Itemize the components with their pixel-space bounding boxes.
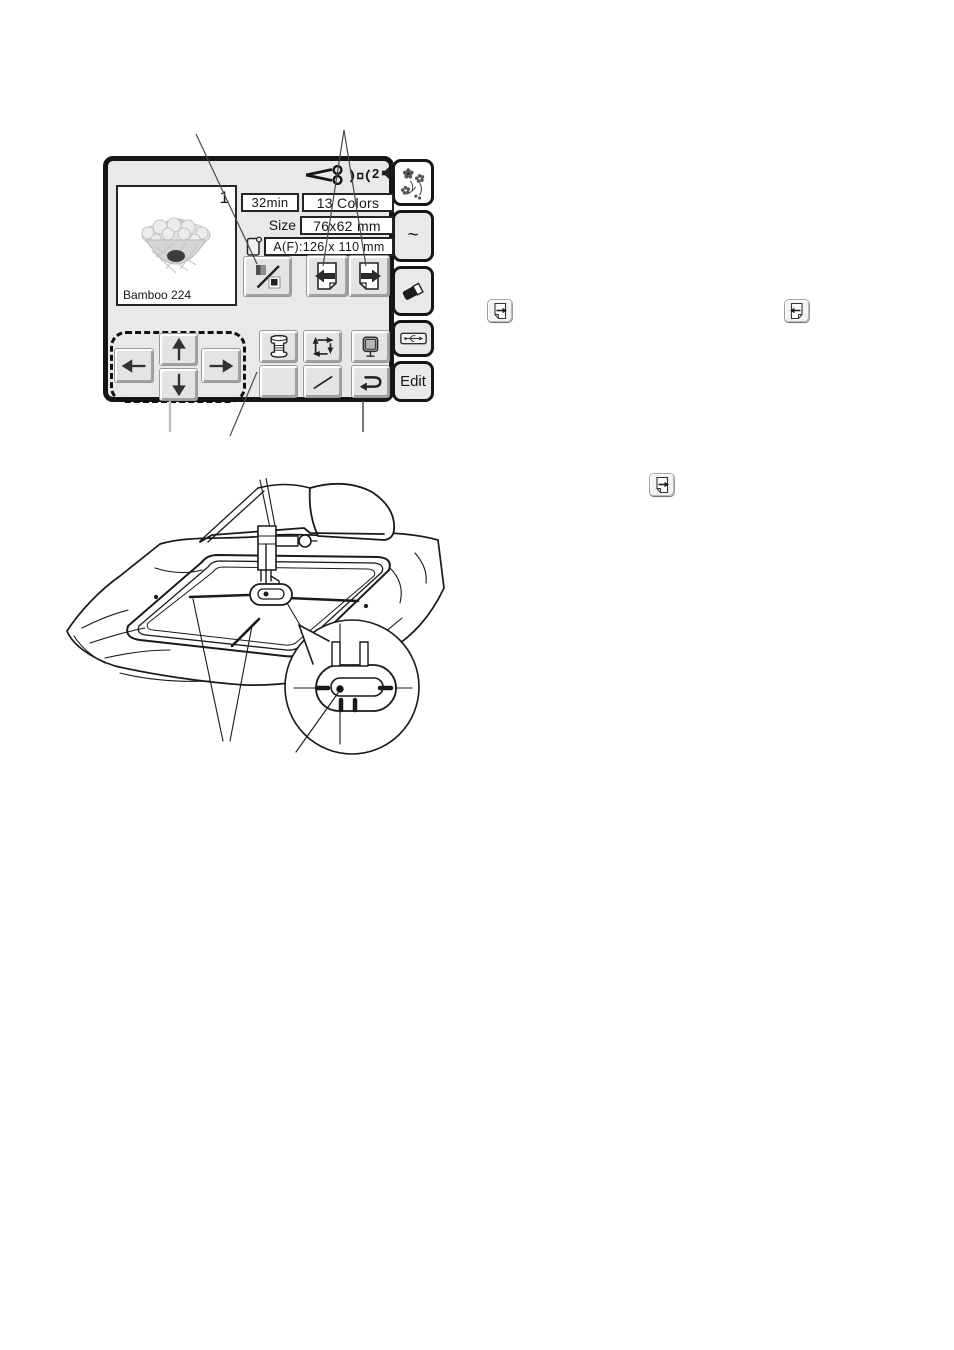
volume-level: 2 [372,166,379,181]
blank-button[interactable] [260,366,297,397]
color-section-icon [253,262,283,292]
jog-left-button[interactable] [115,349,153,382]
bobbin-button[interactable] [260,331,297,362]
usb-icon [399,331,428,346]
color-section-button[interactable] [244,257,291,296]
jog-down-button[interactable] [160,369,197,400]
page-back-button[interactable] [307,256,347,296]
page-forward-icon [654,476,670,494]
size-value-field: 76x62 mm [300,216,394,235]
bobbin-icon [267,333,291,360]
page-forward-icon [492,302,508,320]
tab-edit-label: Edit [400,373,426,390]
jog-up-button[interactable] [160,334,197,365]
baste-line-button[interactable] [304,366,341,397]
tab-usb[interactable] [392,320,434,357]
stitch-time-field: 32min [241,193,299,212]
design-preview: 1 Bamboo 224 [116,185,237,306]
scissors-icon [304,165,346,185]
lcd-panel: 2 1 [103,156,394,402]
trace-icon [310,335,336,359]
tab-design[interactable] [392,159,434,206]
basket-design-image [126,199,226,289]
arrow-down-icon [168,371,190,398]
arrow-right-icon [206,355,236,377]
baste-line-icon [310,370,336,394]
page-back-icon [314,261,340,291]
size-label: Size [254,217,296,233]
magnifier-inset [285,620,419,754]
lcd-screen: ~ Edit [103,156,434,402]
inline-page-forward-button [650,474,674,496]
inline-page-forward-button [488,300,512,322]
screen-adjust-button[interactable] [352,331,389,362]
machine-head [200,478,394,542]
hoop-tag-icon [246,235,263,257]
return-icon [358,369,384,395]
page-forward-icon [356,261,382,291]
tab-erase[interactable] [392,266,434,316]
arrow-up-icon [168,336,190,363]
needle-plate-icon [348,168,372,184]
page-back-icon [789,302,805,320]
speaker-icon [380,164,397,182]
page-forward-button[interactable] [349,256,389,296]
inline-page-back-button [785,300,809,322]
jog-right-button[interactable] [202,349,240,382]
color-count-field: 13 Colors [302,193,394,212]
hoop-monitor-icon [358,334,383,360]
hoop-size-field: A(F):126 x 110 mm [264,237,394,256]
tab-edit[interactable]: Edit [392,361,434,402]
return-button[interactable] [352,366,389,397]
tab-utility[interactable]: ~ [392,210,434,262]
design-tab-icon [397,164,429,202]
arrow-left-icon [119,355,149,377]
eraser-icon [400,280,427,303]
design-name: Bamboo 224 [123,288,191,302]
embroidery-hoop-illustration [60,478,452,768]
trace-button[interactable] [304,331,341,362]
tab-utility-label: ~ [407,225,418,247]
manual-page: ~ Edit [0,0,954,1350]
